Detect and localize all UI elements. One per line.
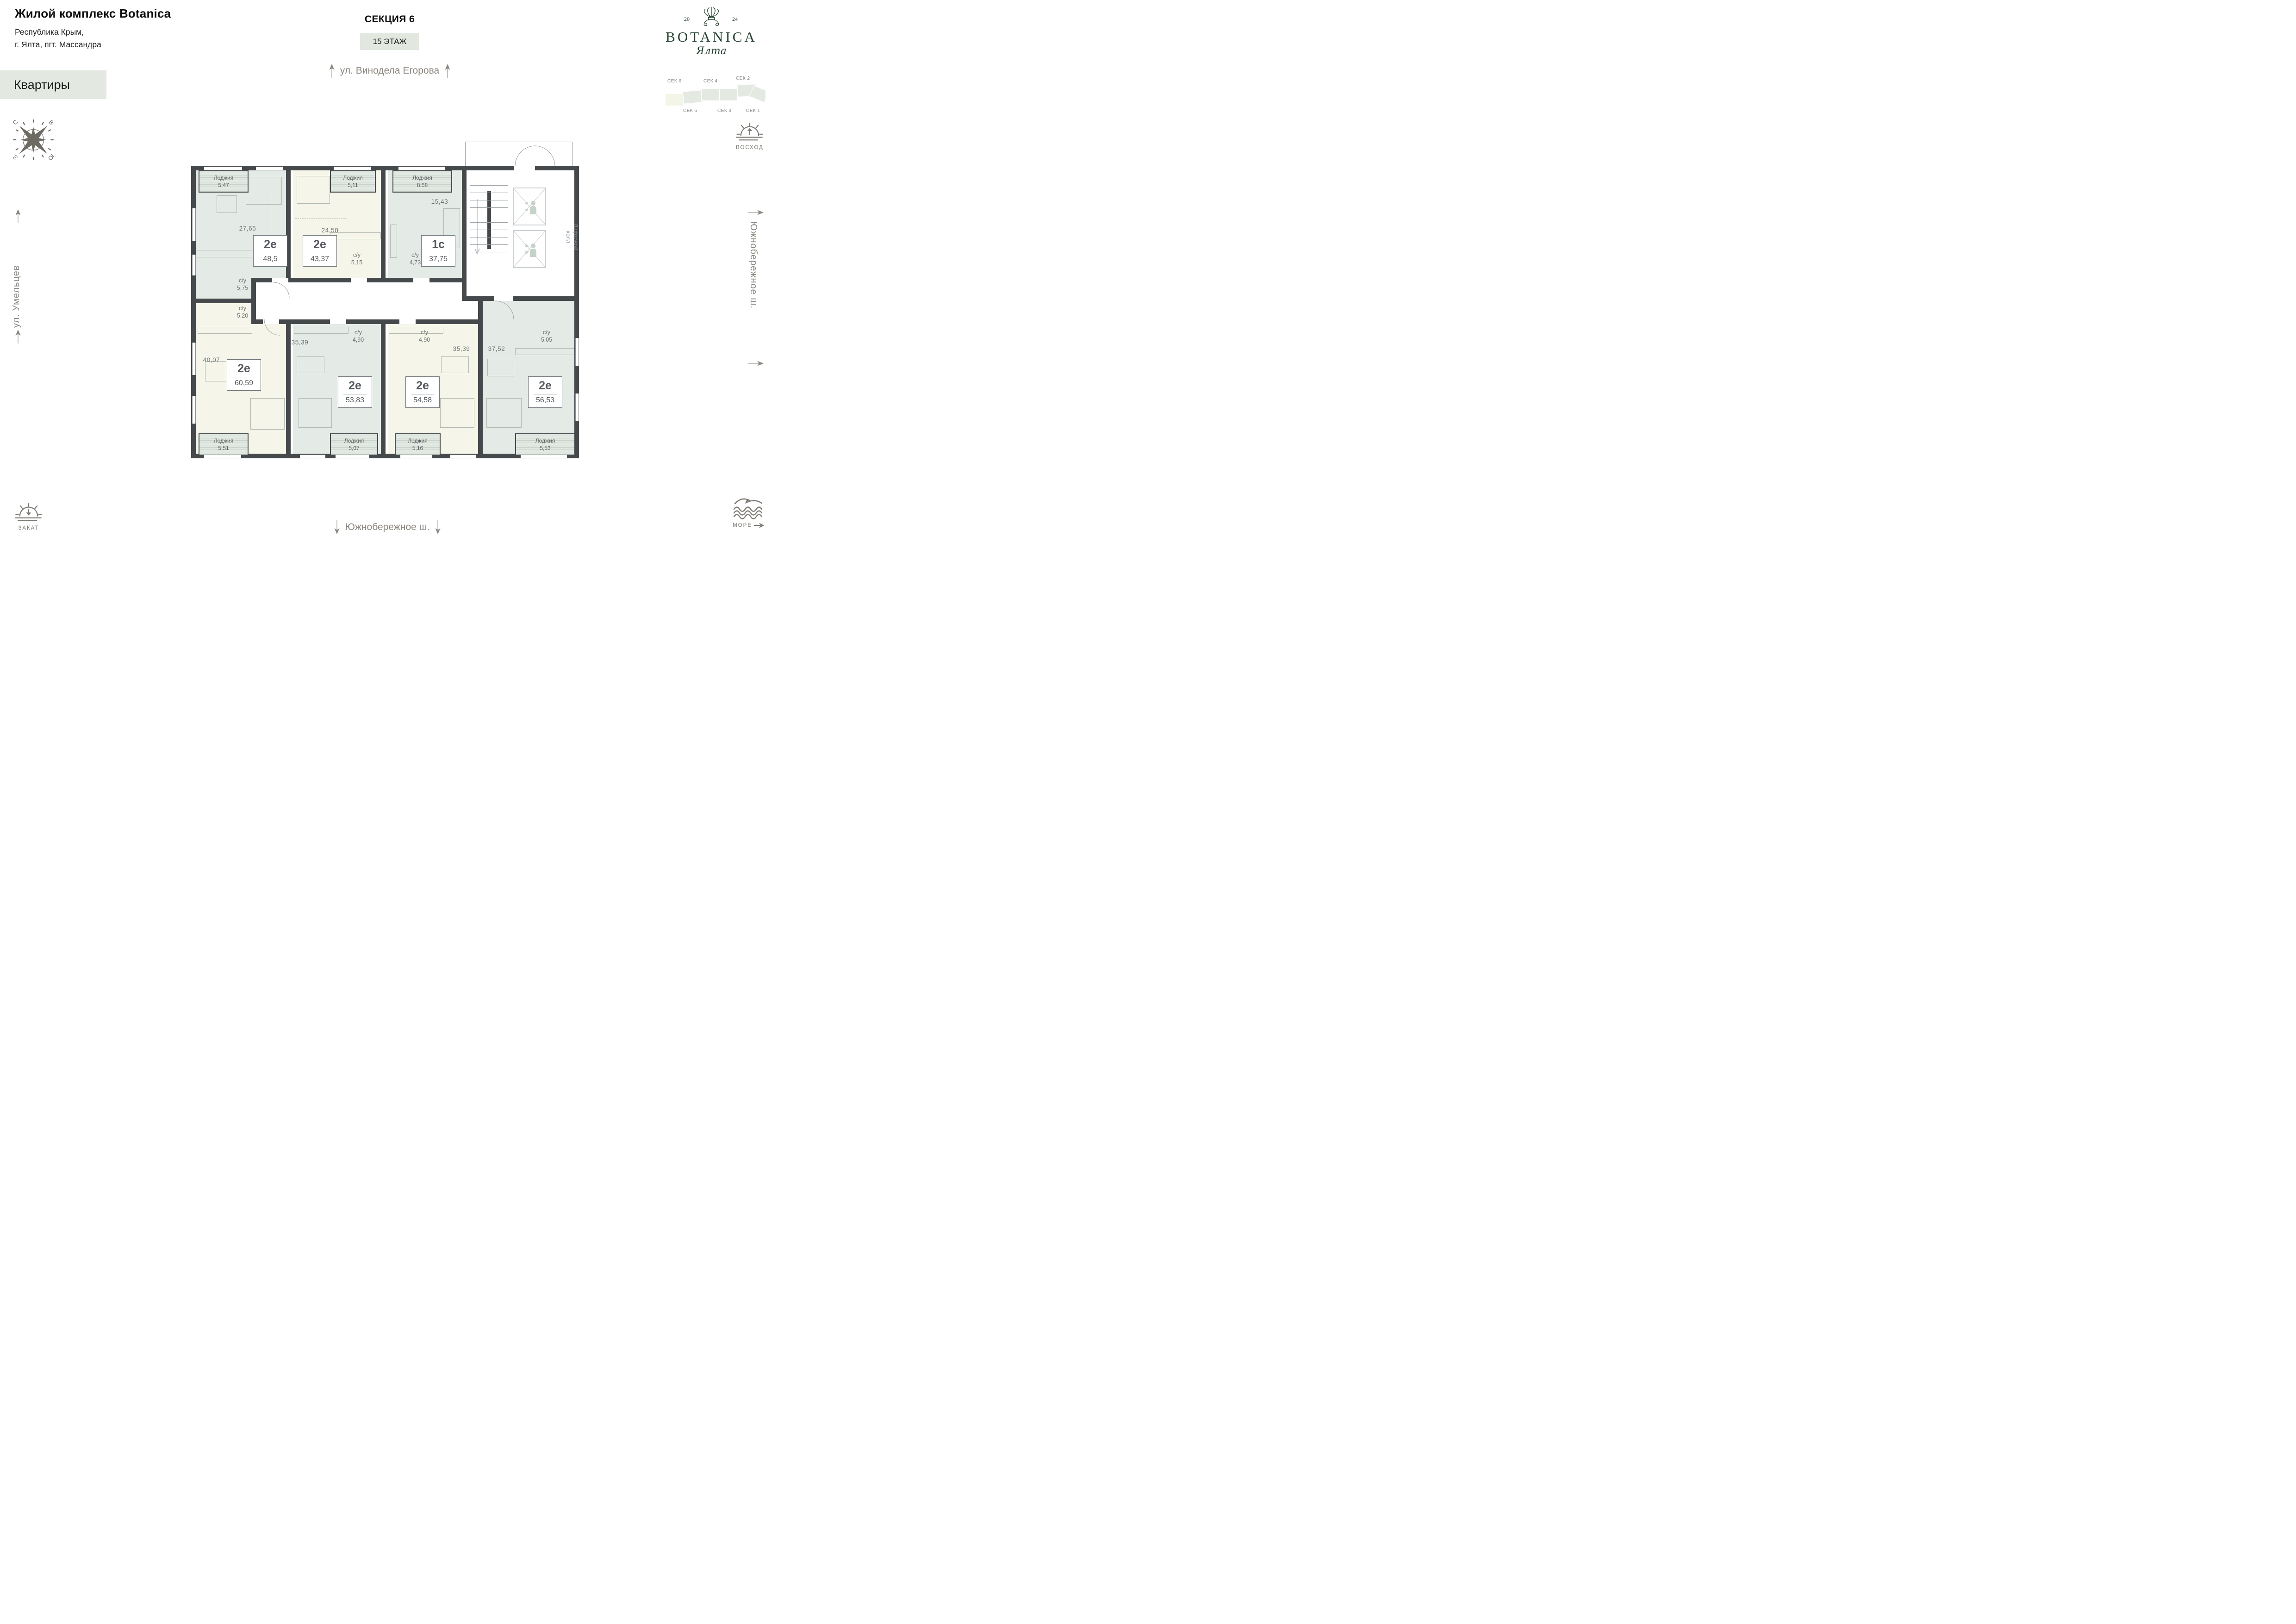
- parapet-outline: [465, 142, 572, 167]
- loggia: Лоджия8,58: [392, 170, 452, 193]
- compass-north: С: [12, 118, 19, 126]
- apartments-badge-label: Квартиры: [0, 78, 70, 92]
- page-title: Жилой комплекс Botanica: [15, 6, 171, 21]
- sea-label: МОРЕ: [733, 523, 752, 528]
- loggia: Лоджия5,11: [330, 170, 376, 193]
- door-opening: [514, 166, 535, 170]
- compass-west: З: [12, 154, 19, 161]
- stairs: [470, 185, 508, 255]
- wc-label: с/у5,75: [230, 277, 255, 292]
- sunset-label: ЗАКАТ: [10, 525, 47, 531]
- section-map-label: СЕК 2: [736, 76, 750, 81]
- up-arrow-icon: [329, 64, 335, 78]
- logo-year-left: 20: [684, 16, 690, 23]
- floor-badge: 15 ЭТАЖ: [360, 33, 419, 50]
- room-area-label: 27,65: [233, 225, 262, 232]
- section-title: СЕКЦИЯ 6: [330, 14, 450, 25]
- room-area-label: 24,50: [315, 227, 345, 234]
- door-opening: [351, 278, 367, 282]
- divider: [411, 394, 434, 394]
- sunset-icon: [14, 503, 43, 523]
- window: [192, 396, 196, 424]
- door-opening: [413, 278, 429, 282]
- furniture-outline: [246, 177, 282, 205]
- section-block-6[interactable]: [665, 94, 684, 106]
- apartment-unit-badge[interactable]: 2е53,83: [338, 376, 372, 408]
- compass-south: Ю: [47, 153, 56, 162]
- wc-label: с/у5,15: [344, 251, 370, 267]
- wall: [251, 319, 483, 324]
- section-map-label: СЕК 4: [703, 79, 718, 84]
- room-area-label: 40,07: [197, 356, 226, 363]
- wc-label: с/у4,90: [411, 329, 437, 344]
- door-opening: [330, 319, 346, 324]
- room-area-label: 35,39: [447, 345, 476, 352]
- apartment-unit-badge[interactable]: 2е48,5: [253, 235, 287, 267]
- sunset-landmark: ЗАКАТ: [10, 503, 47, 531]
- loggia-label: Лоджия: [535, 437, 555, 444]
- apartments-badge: Квартиры: [0, 70, 106, 99]
- window: [521, 455, 567, 458]
- window: [334, 167, 371, 170]
- section-map-label: СЕК 1: [746, 108, 760, 113]
- loggia-label: Лоджия: [408, 437, 428, 444]
- sunrise-label: ВОСХОД: [734, 145, 765, 150]
- furniture-outline: [441, 356, 469, 373]
- street-left-label: ул. Умельцев: [11, 225, 22, 328]
- brand-city: Ялта: [657, 45, 765, 57]
- loggia-label: Лоджия: [344, 437, 364, 444]
- wc-label: с/у5,05: [534, 329, 560, 344]
- window: [192, 343, 196, 375]
- apartment-unit-badge[interactable]: 2е60,59: [227, 359, 261, 391]
- right-arrow-icon: [748, 360, 764, 367]
- section-block-5[interactable]: [683, 90, 702, 104]
- elevator-icon: [513, 187, 546, 225]
- street-top: ул. Винодела Егорова: [274, 64, 505, 78]
- divider: [259, 253, 282, 253]
- wall: [191, 299, 256, 303]
- palmette-icon: [700, 6, 723, 29]
- street-bottom: Южнобережное ш.: [267, 520, 508, 534]
- furniture-outline: [297, 176, 330, 204]
- divider: [534, 394, 557, 394]
- plan-sheet: Жилой комплекс Botanica Республика Крым,…: [0, 0, 765, 541]
- window: [400, 455, 432, 458]
- section-map: СЕК 6 СЕК 4 СЕК 2 СЕК 5 СЕК 3 СЕК 1: [663, 75, 765, 118]
- elevator-icon: [513, 230, 546, 268]
- furniture-outline: [294, 327, 348, 334]
- loggia-label: Лоджия: [412, 174, 432, 181]
- elevator-hall-label: Лифтовой холл: [551, 214, 579, 260]
- sunrise-landmark: ВОСХОД: [734, 122, 765, 150]
- window: [300, 455, 325, 458]
- up-arrow-icon: [445, 64, 450, 78]
- wall: [462, 166, 467, 282]
- loggia-label: Лоджия: [214, 174, 234, 181]
- right-arrow-icon: [754, 523, 764, 528]
- loggia-label: Лоджия: [214, 437, 234, 444]
- furniture-outline: [205, 361, 226, 381]
- door-opening: [399, 319, 416, 324]
- window: [204, 167, 242, 170]
- window: [204, 455, 241, 458]
- address-line1: Республика Крым,: [15, 26, 101, 38]
- address: Республика Крым, г. Ялта, пгт. Массандра: [15, 26, 101, 51]
- down-arrow-icon: [334, 520, 340, 534]
- furniture-outline: [197, 250, 252, 257]
- sea-landmark: МОРЕ: [730, 497, 765, 528]
- street-bottom-label: Южнобережное ш.: [345, 522, 430, 533]
- furniture-outline: [297, 356, 324, 373]
- loggia-area: 5,16: [408, 444, 428, 452]
- dashed-divider: [295, 219, 347, 219]
- furniture-outline: [515, 348, 574, 355]
- section-block-3[interactable]: [719, 88, 738, 101]
- divider: [343, 394, 367, 394]
- loggia-area: 5,53: [535, 444, 555, 452]
- furniture-outline: [250, 398, 285, 430]
- furniture-outline: [390, 225, 397, 258]
- compass-rose-icon: С В З Ю: [7, 114, 59, 166]
- section-block-4[interactable]: [701, 88, 720, 101]
- furniture-outline: [487, 359, 514, 376]
- loggia: Лоджия5,07: [330, 433, 378, 456]
- window: [450, 455, 476, 458]
- up-arrow-icon: [15, 330, 21, 344]
- sunrise-icon: [735, 122, 764, 143]
- address-line2: г. Ялта, пгт. Массандра: [15, 38, 101, 51]
- wall: [381, 324, 386, 458]
- wall: [462, 296, 579, 301]
- dashed-divider: [271, 194, 271, 237]
- room-area-label: 15,43: [425, 198, 454, 205]
- section-map-label: СЕК 5: [683, 108, 697, 113]
- street-right-label: Южнобережное ш.: [748, 221, 759, 356]
- street-top-label: ул. Винодела Егорова: [340, 65, 439, 76]
- loggia-area: 5,07: [344, 444, 364, 452]
- right-arrow-icon: [748, 209, 764, 216]
- window: [256, 167, 283, 170]
- loggia-area: 5,47: [214, 181, 234, 189]
- loggia-area: 5,11: [343, 181, 363, 189]
- door-opening: [494, 296, 513, 301]
- brand-name: BOTANICA: [657, 29, 765, 45]
- door-opening: [263, 319, 279, 324]
- down-arrow-icon: [435, 520, 441, 534]
- divider: [232, 377, 255, 377]
- loggia: Лоджия5,16: [395, 433, 441, 456]
- loggia: Лоджия5,51: [199, 433, 249, 456]
- loggia-label: Лоджия: [343, 174, 363, 181]
- window: [336, 455, 369, 458]
- furniture-outline: [217, 195, 237, 213]
- furniture-outline: [198, 327, 252, 334]
- waves-icon: [733, 497, 764, 520]
- apartment-unit-badge[interactable]: 2е43,37: [303, 235, 337, 267]
- wall: [478, 301, 483, 458]
- furniture-outline: [486, 398, 522, 428]
- window: [575, 338, 579, 366]
- door-opening: [272, 278, 288, 282]
- window: [192, 208, 196, 241]
- loggia: Лоджия5,47: [199, 170, 249, 193]
- loggia-area: 5,51: [214, 444, 234, 452]
- logo-year-right: 24: [732, 16, 738, 23]
- divider: [308, 253, 331, 253]
- up-arrow-icon: [15, 209, 21, 223]
- wall: [462, 278, 467, 301]
- divider: [427, 253, 450, 253]
- window: [192, 255, 196, 275]
- furniture-outline: [299, 398, 332, 428]
- loggia-area: 8,58: [412, 181, 432, 189]
- room-area-label: 35,39: [285, 339, 315, 346]
- section-map-label: СЕК 3: [717, 108, 732, 113]
- furniture-outline: [440, 398, 474, 428]
- apartment-unit-badge[interactable]: 2е56,53: [528, 376, 562, 408]
- room-area-label: 37,52: [482, 345, 511, 352]
- apartment-unit-badge[interactable]: 1с37,75: [421, 235, 455, 267]
- section-map-label: СЕК 6: [667, 79, 682, 84]
- wall: [381, 166, 386, 282]
- floor-plan: Лоджия5,47 Лоджия5,11 Лоджия8,58 Лоджия5…: [191, 139, 587, 461]
- wc-label: с/у5,20: [230, 305, 255, 320]
- window: [398, 167, 445, 170]
- wc-label: с/у4,90: [345, 329, 371, 344]
- brand-logo: 20 24 BOTANICA Ялта: [657, 5, 765, 57]
- loggia: Лоджия5,53: [515, 433, 575, 456]
- window: [575, 394, 579, 421]
- compass-east: В: [47, 119, 55, 126]
- apartment-unit-badge[interactable]: 2е54,58: [405, 376, 440, 408]
